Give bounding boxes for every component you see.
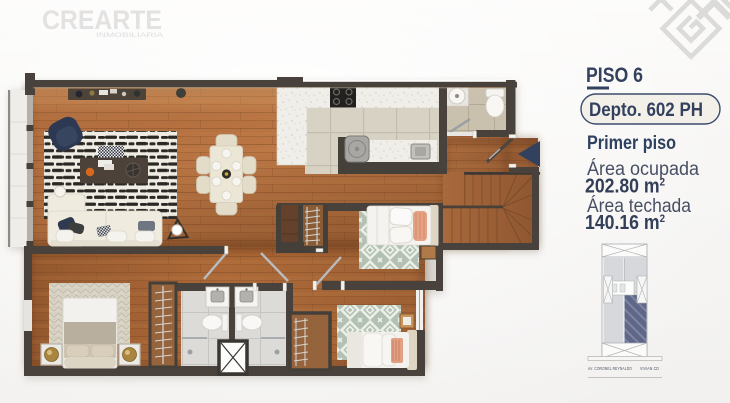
svg-text:140.16 m2: 140.16 m2 — [585, 212, 665, 234]
svg-text:202.80 m2: 202.80 m2 — [585, 176, 665, 198]
svg-text:PISO 6: PISO 6 — [586, 64, 643, 87]
svg-text:CREARTE: CREARTE — [42, 5, 162, 35]
svg-text:VIVIAN CD: VIVIAN CD — [640, 366, 659, 371]
svg-text:Primer piso: Primer piso — [587, 133, 676, 154]
svg-text:Depto. 602 PH: Depto. 602 PH — [589, 99, 703, 121]
svg-text:INMOBILIARIA: INMOBILIARIA — [96, 32, 164, 39]
svg-text:AV. CORONEL REYNALDO: AV. CORONEL REYNALDO — [588, 366, 632, 371]
